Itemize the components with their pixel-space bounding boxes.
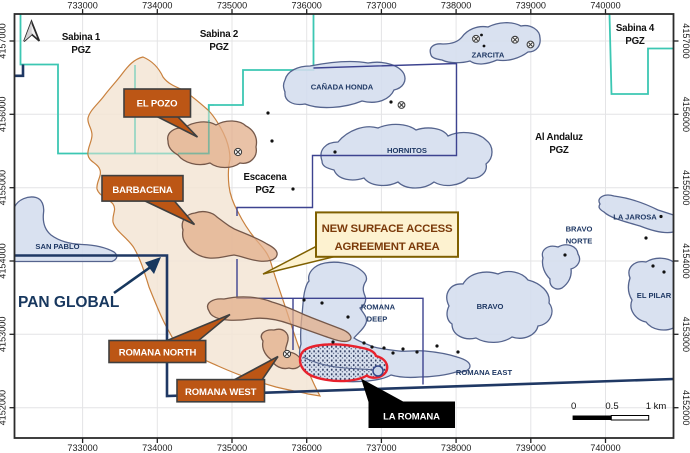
- svg-text:HORNITOS: HORNITOS: [387, 146, 427, 155]
- svg-text:4156000: 4156000: [681, 97, 690, 132]
- svg-text:EL PILAR: EL PILAR: [637, 291, 672, 300]
- svg-text:Escacena: Escacena: [243, 172, 287, 183]
- svg-text:734000: 734000: [142, 1, 172, 11]
- svg-text:1 km: 1 km: [646, 401, 667, 412]
- svg-text:ROMANA NORTH: ROMANA NORTH: [119, 348, 197, 359]
- svg-text:NEW SURFACE ACCESS: NEW SURFACE ACCESS: [322, 223, 453, 235]
- svg-text:Sabina 1: Sabina 1: [62, 32, 101, 43]
- svg-text:733000: 733000: [67, 443, 97, 453]
- svg-text:AGREEMENT AREA: AGREEMENT AREA: [335, 241, 440, 253]
- svg-text:4157000: 4157000: [0, 23, 8, 58]
- svg-text:PGZ: PGZ: [549, 145, 569, 156]
- svg-text:739000: 739000: [516, 443, 546, 453]
- svg-text:738000: 738000: [441, 443, 471, 453]
- svg-text:4152000: 4152000: [681, 390, 690, 425]
- svg-text:4154000: 4154000: [0, 243, 8, 278]
- svg-text:BRAVO: BRAVO: [566, 225, 593, 234]
- svg-text:Al Andaluz: Al Andaluz: [535, 132, 583, 143]
- svg-text:ROMANA WEST: ROMANA WEST: [185, 387, 257, 398]
- svg-text:LA JAROSA: LA JAROSA: [613, 213, 657, 222]
- svg-text:EL POZO: EL POZO: [137, 99, 178, 110]
- svg-text:BARBACENA: BARBACENA: [112, 185, 173, 196]
- svg-text:PGZ: PGZ: [625, 36, 645, 47]
- svg-text:739000: 739000: [516, 1, 546, 11]
- svg-text:Sabina 4: Sabina 4: [616, 23, 655, 34]
- svg-text:736000: 736000: [292, 443, 322, 453]
- svg-text:737000: 737000: [366, 1, 396, 11]
- svg-text:734000: 734000: [142, 443, 172, 453]
- svg-text:738000: 738000: [441, 1, 471, 11]
- svg-text:4156000: 4156000: [0, 97, 8, 132]
- svg-text:735000: 735000: [217, 1, 247, 11]
- svg-text:BRAVO: BRAVO: [477, 302, 504, 311]
- svg-text:DEEP: DEEP: [367, 315, 388, 324]
- svg-text:4155000: 4155000: [681, 170, 690, 205]
- svg-text:LA ROMANA: LA ROMANA: [383, 412, 440, 423]
- svg-text:Sabina 2: Sabina 2: [200, 29, 238, 40]
- svg-text:735000: 735000: [217, 443, 247, 453]
- svg-text:PGZ: PGZ: [255, 185, 275, 196]
- svg-text:PAN GLOBAL: PAN GLOBAL: [18, 294, 119, 311]
- svg-text:733000: 733000: [67, 1, 97, 11]
- svg-text:NORTE: NORTE: [566, 237, 593, 246]
- svg-text:SAN PABLO: SAN PABLO: [35, 242, 79, 251]
- svg-text:ZARCITA: ZARCITA: [472, 51, 505, 60]
- svg-text:ROMANA: ROMANA: [361, 303, 396, 312]
- svg-text:740000: 740000: [590, 1, 620, 11]
- svg-text:4153000: 4153000: [681, 317, 690, 352]
- svg-text:4155000: 4155000: [0, 170, 8, 205]
- svg-text:ROMANA EAST: ROMANA EAST: [456, 368, 513, 377]
- svg-text:0.5: 0.5: [605, 401, 618, 412]
- svg-text:CAÑADA HONDA: CAÑADA HONDA: [311, 83, 374, 92]
- svg-text:0: 0: [571, 401, 576, 412]
- svg-text:4154000: 4154000: [681, 243, 690, 278]
- svg-text:736000: 736000: [292, 1, 322, 11]
- svg-text:4152000: 4152000: [0, 390, 8, 425]
- svg-text:4153000: 4153000: [0, 317, 8, 352]
- svg-text:4157000: 4157000: [681, 23, 690, 58]
- svg-text:740000: 740000: [590, 443, 620, 453]
- svg-text:PGZ: PGZ: [71, 45, 91, 56]
- svg-text:737000: 737000: [366, 443, 396, 453]
- svg-text:PGZ: PGZ: [209, 42, 229, 53]
